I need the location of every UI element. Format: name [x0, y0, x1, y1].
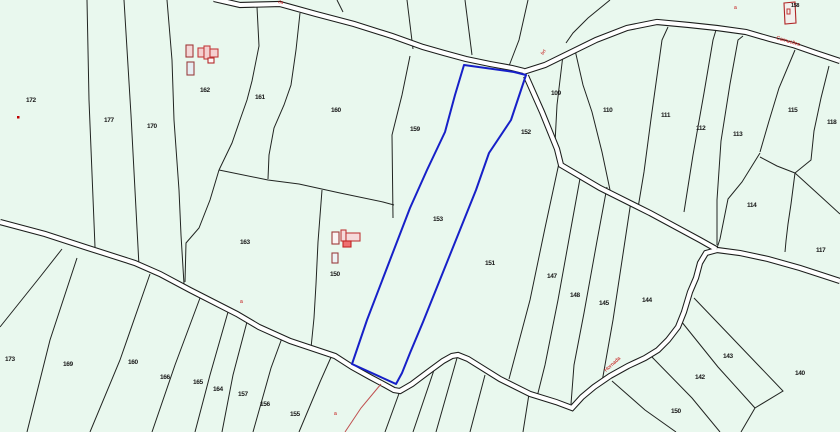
svg-text:173: 173 — [5, 356, 16, 363]
svg-text:157: 157 — [238, 391, 249, 398]
svg-text:166: 166 — [160, 374, 171, 381]
svg-text:147: 147 — [547, 273, 558, 280]
svg-text:150: 150 — [671, 408, 682, 415]
svg-text:163: 163 — [240, 239, 251, 246]
svg-text:145: 145 — [599, 300, 610, 307]
svg-text:155: 155 — [290, 411, 301, 418]
svg-text:172: 172 — [26, 97, 37, 104]
svg-text:148: 148 — [570, 292, 581, 299]
svg-text:140: 140 — [795, 370, 806, 377]
svg-text:160: 160 — [128, 359, 139, 366]
svg-text:109: 109 — [551, 90, 562, 97]
svg-text:117: 117 — [816, 247, 826, 254]
svg-text:115: 115 — [788, 107, 798, 114]
svg-text:159: 159 — [410, 126, 421, 133]
svg-text:162: 162 — [200, 87, 211, 94]
svg-text:177: 177 — [104, 117, 115, 124]
svg-text:156: 156 — [260, 401, 271, 408]
svg-text:144: 144 — [642, 297, 653, 304]
svg-text:153: 153 — [433, 216, 444, 223]
svg-text:165: 165 — [193, 379, 204, 386]
svg-text:111: 111 — [661, 112, 671, 119]
svg-text:142: 142 — [695, 374, 706, 381]
svg-text:151: 151 — [485, 260, 496, 267]
svg-text:143: 143 — [723, 353, 734, 360]
svg-text:a: a — [334, 411, 337, 417]
svg-text:a: a — [240, 299, 243, 305]
svg-text:114: 114 — [747, 202, 757, 209]
svg-text:113: 113 — [733, 131, 743, 138]
svg-text:150: 150 — [330, 271, 341, 278]
svg-text:161: 161 — [255, 94, 266, 101]
svg-text:158: 158 — [791, 3, 799, 9]
svg-text:169: 169 — [63, 361, 74, 368]
svg-text:170: 170 — [147, 123, 158, 130]
svg-text:112: 112 — [696, 125, 706, 132]
svg-text:118: 118 — [827, 119, 837, 126]
svg-text:164: 164 — [213, 386, 224, 393]
svg-text:a: a — [734, 5, 737, 11]
svg-text:110: 110 — [603, 107, 613, 114]
svg-text:152: 152 — [521, 129, 532, 136]
svg-text:160: 160 — [331, 107, 342, 114]
